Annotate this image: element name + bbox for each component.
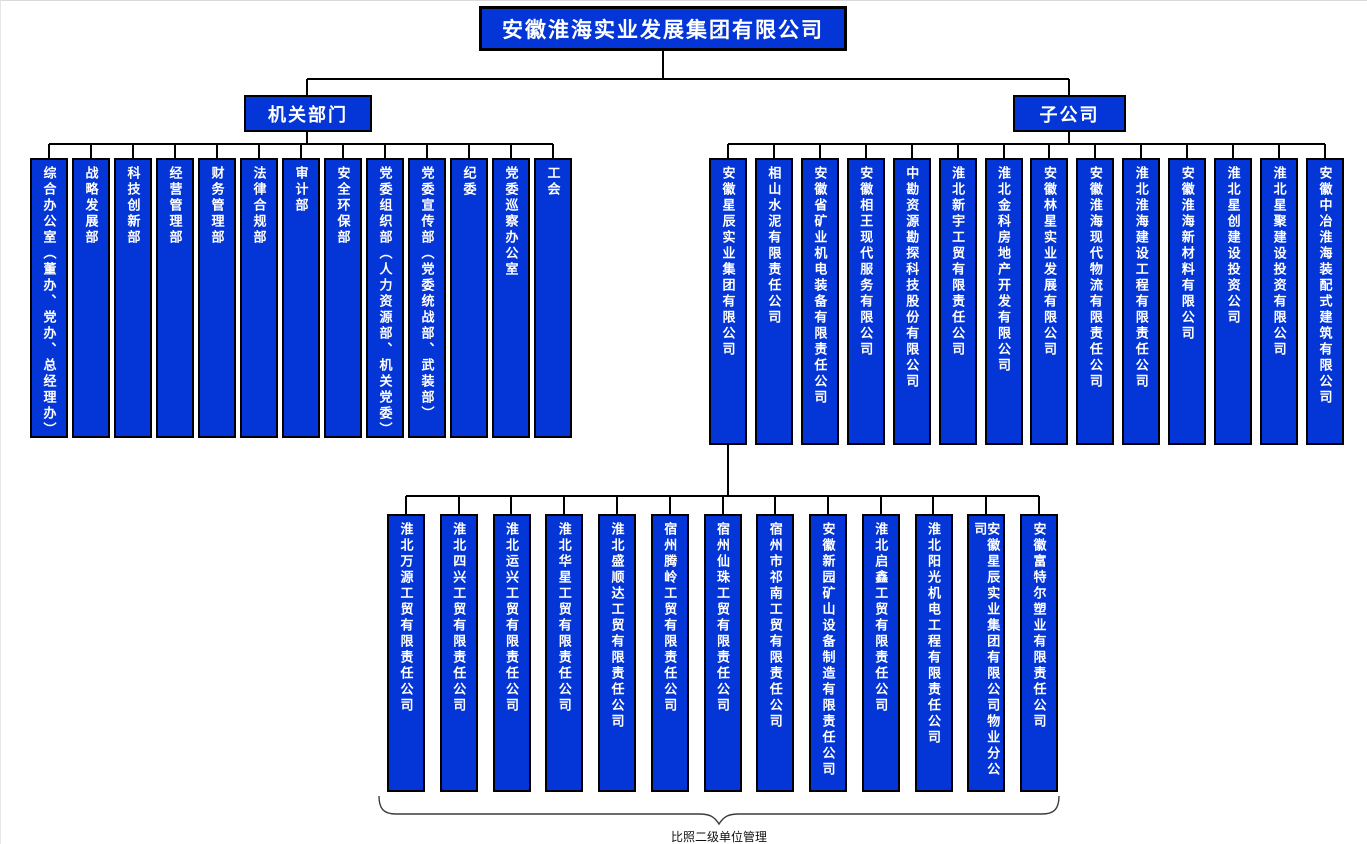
subsidiary-node: 淮北星创建设投资公司 <box>1214 158 1252 445</box>
third-level-node: 淮北四兴工贸有限责任公司 <box>440 514 478 792</box>
departments-branch-node: 机关部门 <box>244 95 372 132</box>
third-level-node: 淮北运兴工贸有限责任公司 <box>493 514 531 792</box>
third-level-label: 安徽新园矿山设备制造有限责任公司 <box>822 522 835 778</box>
subsidiary-label: 淮北星聚建设投资有限公司 <box>1273 166 1286 358</box>
department-node: 战略发展部 <box>72 158 110 438</box>
subsidiary-label: 安徽淮海新材料有限公司 <box>1181 166 1194 342</box>
subsidiary-node: 安徽省矿业机电装备有限责任公司 <box>801 158 839 445</box>
department-label: 财务管理部 <box>211 166 224 246</box>
subsidiary-node: 安徽淮海现代物流有限责任公司 <box>1076 158 1114 445</box>
third-level-node: 淮北盛顺达工贸有限责任公司 <box>598 514 636 792</box>
third-level-node: 淮北万源工贸有限责任公司 <box>387 514 425 792</box>
subsidiary-node: 安徽星辰实业集团有限公司 <box>709 158 747 445</box>
third-level-node: 淮北华星工贸有限责任公司 <box>545 514 583 792</box>
department-label: 安全环保部 <box>337 166 350 246</box>
department-node: 安全环保部 <box>324 158 362 438</box>
brace <box>379 796 1059 824</box>
department-label: 经营管理部 <box>169 166 182 246</box>
departments-branch-label: 机关部门 <box>268 101 348 127</box>
subsidiary-node: 安徽淮海新材料有限公司 <box>1168 158 1206 445</box>
subsidiary-node: 淮北淮海建设工程有限责任公司 <box>1122 158 1160 445</box>
root-node: 安徽淮海实业发展集团有限公司 <box>479 6 847 51</box>
third-level-node: 宿州市祁南工贸有限责任公司 <box>756 514 794 792</box>
subsidiary-label: 安徽淮海现代物流有限责任公司 <box>1089 166 1102 390</box>
org-chart: 安徽淮海实业发展集团有限公司 机关部门 子公司 综合办公室（董办、党办、总经理办… <box>0 0 1367 844</box>
subsidiary-label: 安徽中冶淮海装配式建筑有限公司 <box>1318 166 1331 406</box>
third-level-label: 淮北万源工贸有限责任公司 <box>400 522 413 714</box>
department-label: 党委宣传部（党委统战部、武装部） <box>421 166 434 422</box>
department-node: 法律合规部 <box>240 158 278 438</box>
department-label: 党委组织部（人力资源部、机关党委） <box>379 166 392 436</box>
department-node: 经营管理部 <box>156 158 194 438</box>
third-level-node: 安徽星辰实业集团有限公司物业分公司 <box>967 514 1005 792</box>
subsidiary-label: 安徽星辰实业集团有限公司 <box>722 166 735 358</box>
subsidiary-node: 相山水泥有限责任公司 <box>755 158 793 445</box>
department-label: 审计部 <box>295 166 308 214</box>
subsidiary-node: 淮北金科房地产开发有限公司 <box>985 158 1023 445</box>
third-level-node: 淮北阳光机电工程有限责任公司 <box>915 514 953 792</box>
department-node: 党委宣传部（党委统战部、武装部） <box>408 158 446 438</box>
third-level-label: 宿州市祁南工贸有限责任公司 <box>769 522 782 730</box>
third-level-node: 宿州腾岭工贸有限责任公司 <box>651 514 689 792</box>
subsidiary-node: 中勘资源勘探科技股份有限公司 <box>893 158 931 445</box>
third-level-node: 安徽富特尔塑业有限责任公司 <box>1020 514 1058 792</box>
department-node: 财务管理部 <box>198 158 236 438</box>
department-node: 纪委 <box>450 158 488 438</box>
subsidiaries-row: 安徽星辰实业集团有限公司 相山水泥有限责任公司 安徽省矿业机电装备有限责任公司 … <box>709 158 1344 445</box>
subsidiary-label: 安徽林星实业发展有限公司 <box>1043 166 1056 358</box>
root-label: 安徽淮海实业发展集团有限公司 <box>502 14 824 44</box>
third-level-label: 淮北启鑫工贸有限责任公司 <box>874 522 887 714</box>
third-level-label: 安徽富特尔塑业有限责任公司 <box>1033 522 1046 730</box>
department-node: 综合办公室（董办、党办、总经理办） <box>30 158 68 438</box>
department-label: 科技创新部 <box>127 166 140 246</box>
department-node: 党委组织部（人力资源部、机关党委） <box>366 158 404 438</box>
department-label: 工会 <box>547 166 560 198</box>
subsidiary-node: 安徽林星实业发展有限公司 <box>1030 158 1068 445</box>
third-level-label: 淮北阳光机电工程有限责任公司 <box>927 522 940 746</box>
third-level-node: 淮北启鑫工贸有限责任公司 <box>862 514 900 792</box>
third-level-label: 宿州仙珠工贸有限责任公司 <box>716 522 729 714</box>
third-level-label: 淮北运兴工贸有限责任公司 <box>505 522 518 714</box>
department-node: 审计部 <box>282 158 320 438</box>
subsidiary-label: 相山水泥有限责任公司 <box>767 166 780 326</box>
department-label: 党委巡察办公室 <box>505 166 518 278</box>
department-label: 综合办公室（董办、党办、总经理办） <box>43 166 56 436</box>
third-level-node: 安徽新园矿山设备制造有限责任公司 <box>809 514 847 792</box>
department-label: 法律合规部 <box>253 166 266 246</box>
subsidiary-label: 淮北星创建设投资公司 <box>1227 166 1240 326</box>
subsidiary-label: 淮北淮海建设工程有限责任公司 <box>1135 166 1148 390</box>
third-level-label: 淮北盛顺达工贸有限责任公司 <box>611 522 624 730</box>
subsidiary-node: 淮北新宇工贸有限责任公司 <box>939 158 977 445</box>
departments-row: 综合办公室（董办、党办、总经理办） 战略发展部 科技创新部 经营管理部 财务管理… <box>30 158 572 438</box>
subsidiary-label: 淮北新宇工贸有限责任公司 <box>951 166 964 358</box>
subsidiaries-branch-node: 子公司 <box>1013 95 1126 132</box>
third-level-row: 淮北万源工贸有限责任公司 淮北四兴工贸有限责任公司 淮北运兴工贸有限责任公司 淮… <box>387 514 1058 792</box>
subsidiaries-branch-label: 子公司 <box>1040 101 1100 127</box>
department-label: 纪委 <box>463 166 476 198</box>
subsidiary-label: 淮北金科房地产开发有限公司 <box>997 166 1010 374</box>
third-level-node: 宿州仙珠工贸有限责任公司 <box>704 514 742 792</box>
footnote-label: 比照二级单位管理 <box>569 828 869 844</box>
third-level-label: 淮北华星工贸有限责任公司 <box>558 522 571 714</box>
subsidiary-label: 安徽相王现代服务有限公司 <box>859 166 872 358</box>
subsidiary-node: 安徽相王现代服务有限公司 <box>847 158 885 445</box>
department-label: 战略发展部 <box>85 166 98 246</box>
department-node: 工会 <box>534 158 572 438</box>
subsidiary-node: 安徽中冶淮海装配式建筑有限公司 <box>1306 158 1344 445</box>
department-node: 科技创新部 <box>114 158 152 438</box>
subsidiary-label: 中勘资源勘探科技股份有限公司 <box>905 166 918 390</box>
third-level-label: 安徽星辰实业集团有限公司物业分公司 <box>973 522 999 790</box>
third-level-label: 淮北四兴工贸有限责任公司 <box>452 522 465 714</box>
subsidiary-label: 安徽省矿业机电装备有限责任公司 <box>813 166 826 406</box>
third-level-label: 宿州腾岭工贸有限责任公司 <box>663 522 676 714</box>
subsidiary-node: 淮北星聚建设投资有限公司 <box>1260 158 1298 445</box>
department-node: 党委巡察办公室 <box>492 158 530 438</box>
